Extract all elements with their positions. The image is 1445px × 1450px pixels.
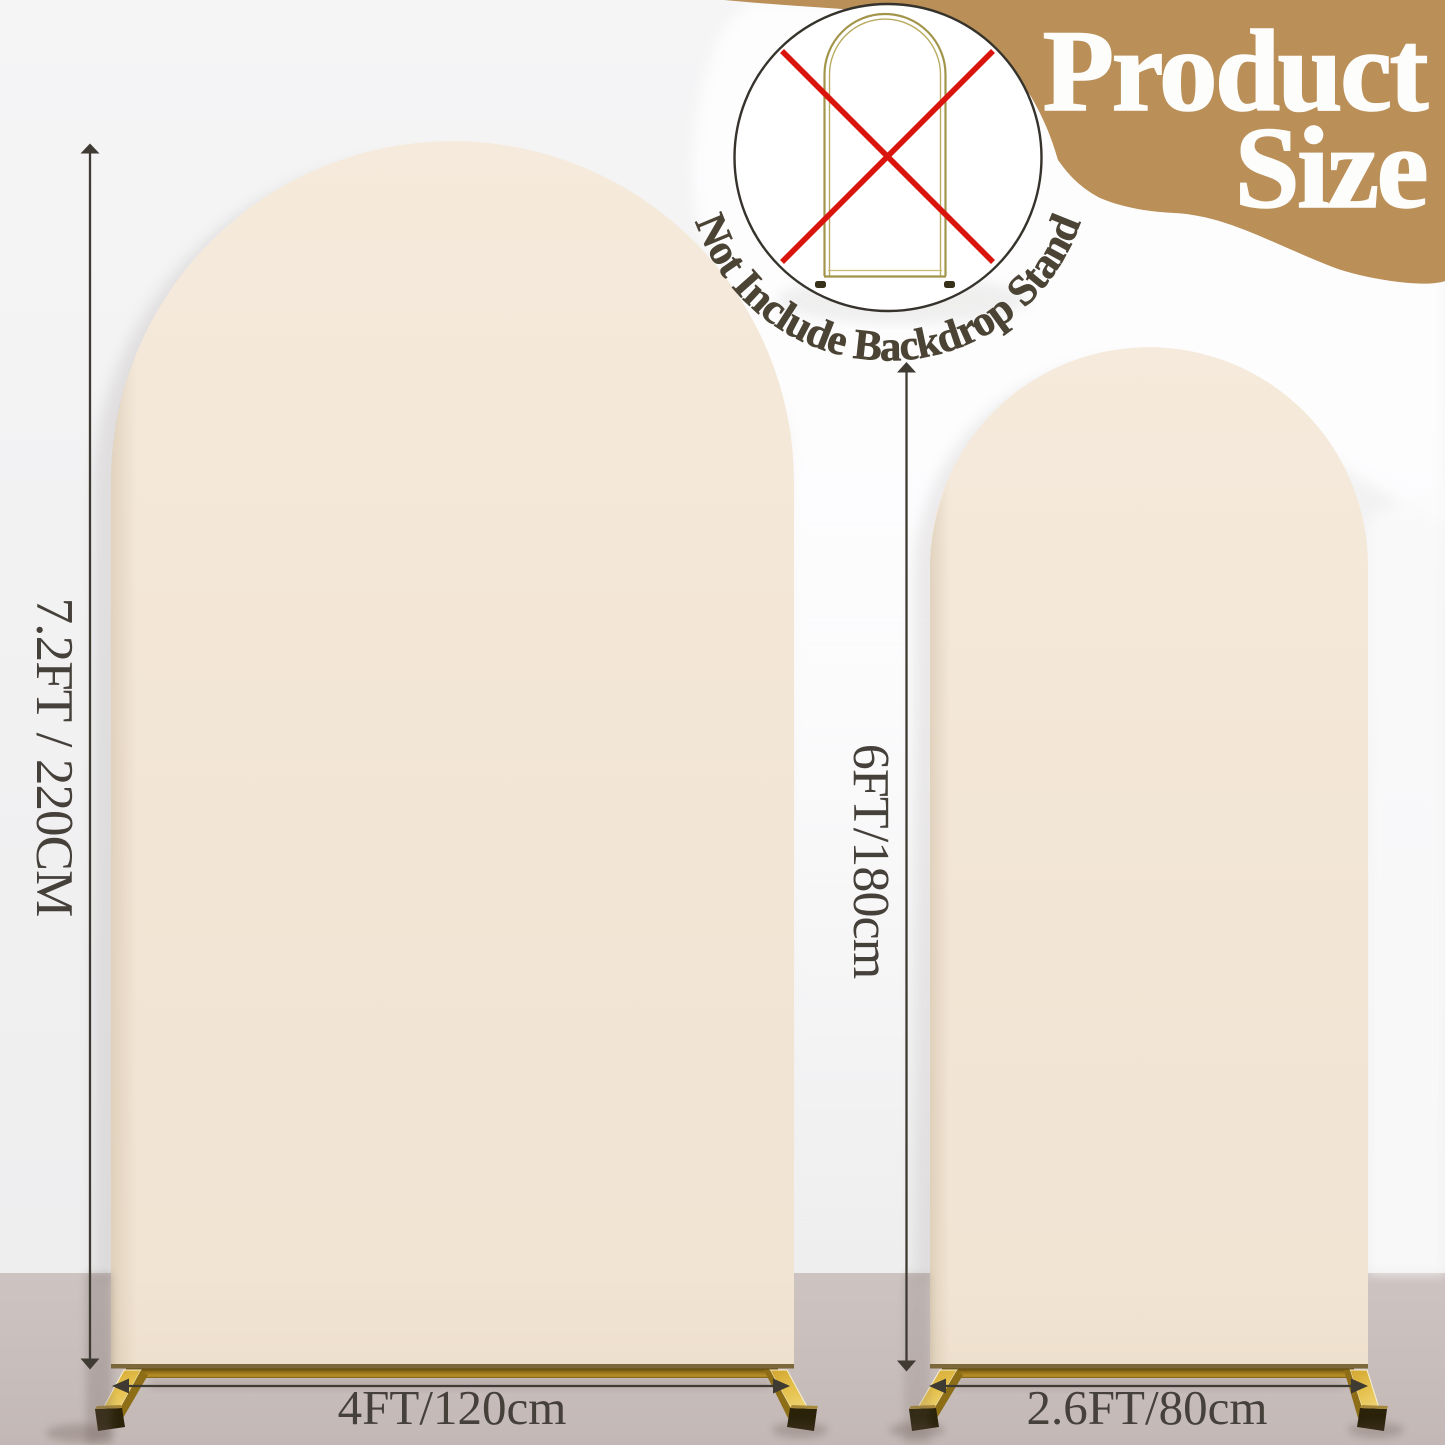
svg-text:7.2FT / 220CM: 7.2FT / 220CM <box>25 598 83 917</box>
svg-text:6FT/180cm: 6FT/180cm <box>842 744 899 979</box>
svg-text:2.6FT/80cm: 2.6FT/80cm <box>1027 1380 1268 1435</box>
svg-text:4FT/120cm: 4FT/120cm <box>338 1380 567 1435</box>
svg-text:Size: Size <box>1235 104 1426 233</box>
